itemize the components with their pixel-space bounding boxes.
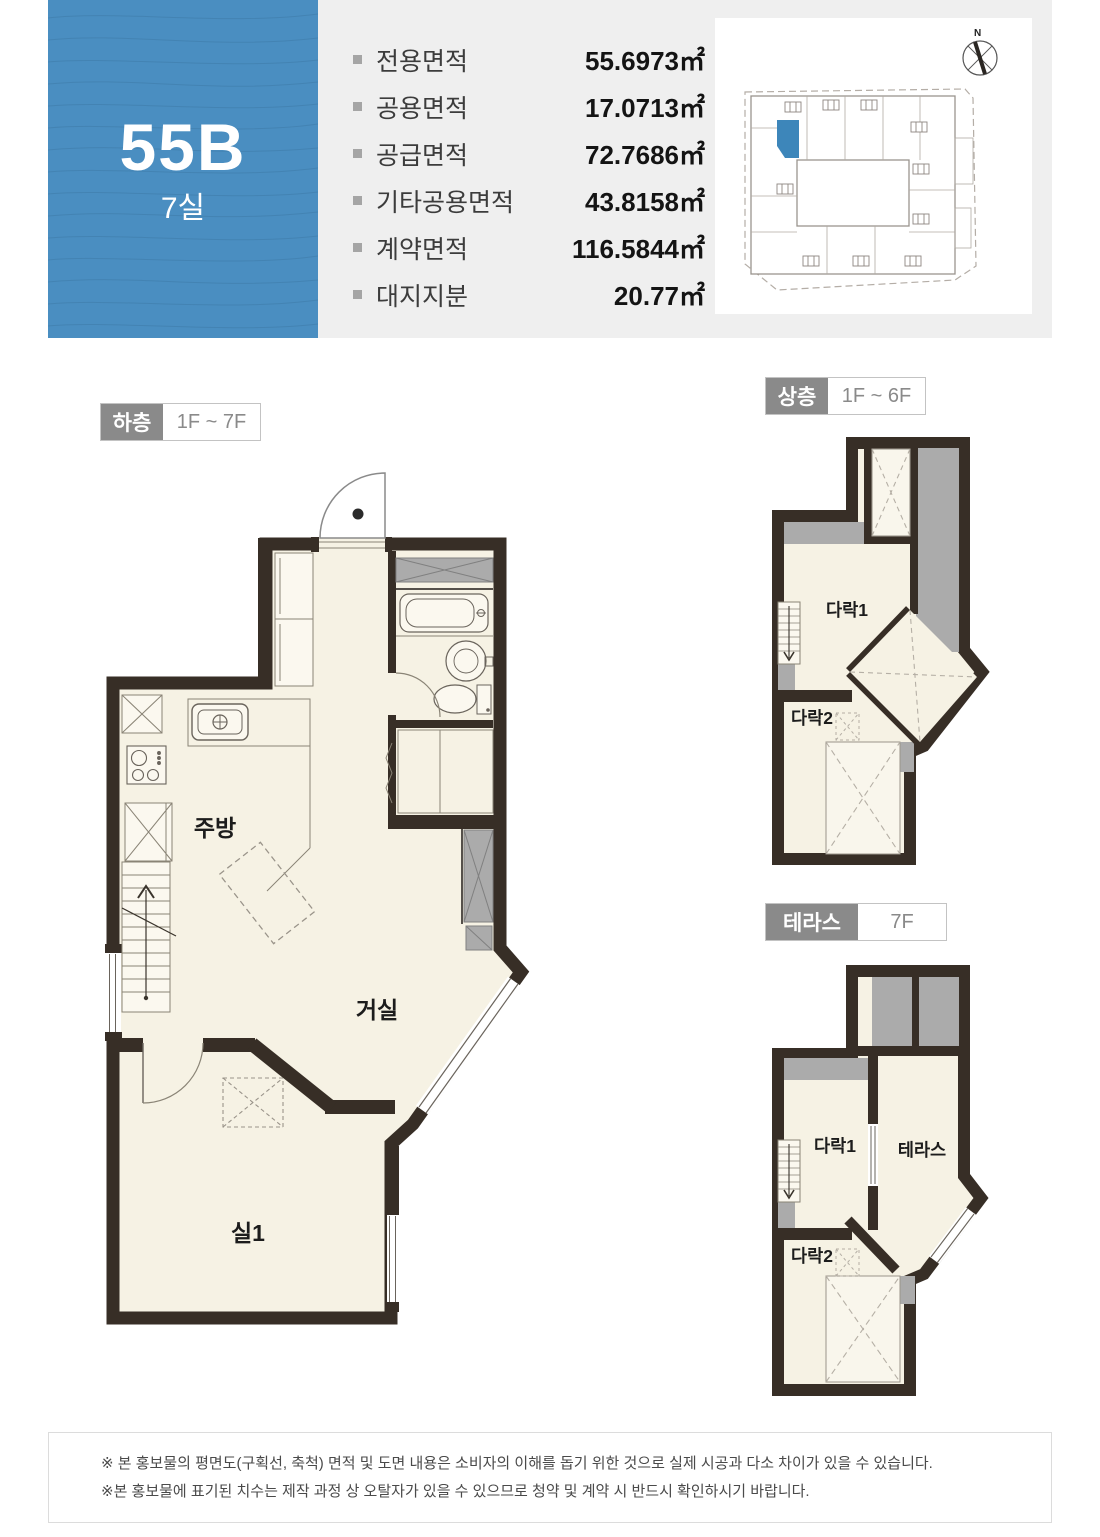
- upper-floor-plan: 다락1 다락2: [750, 430, 1000, 875]
- site-key-plan: N: [715, 18, 1032, 314]
- window-attic-terrace: [868, 1124, 878, 1186]
- kitchen-label: 주방: [194, 815, 236, 841]
- terrace-label: 테라스: [898, 1140, 946, 1160]
- spec-label: 대지지분: [376, 277, 534, 313]
- spec-value: 17.0713㎡: [534, 88, 705, 125]
- window-left: [105, 944, 122, 1041]
- staircase: [122, 862, 176, 1012]
- spec-label: 전용면적: [376, 42, 534, 78]
- staircase: [778, 1140, 800, 1202]
- spec-row: 계약면적 116.5844㎡: [353, 224, 705, 271]
- floor-tag-name: 상층: [766, 378, 828, 414]
- disclaimer-box: ※ 본 홍보물의 평면도(구획선, 축척) 면적 및 도면 내용은 소비자의 이…: [48, 1432, 1052, 1523]
- bullet-icon: [353, 149, 362, 158]
- spec-row: 공용면적 17.0713㎡: [353, 83, 705, 130]
- lower-floor-plan: 주방 거실 실1: [100, 458, 540, 1368]
- cabinet-x-upper: [122, 695, 162, 733]
- compass-icon: N: [963, 28, 997, 75]
- room1-label: 실1: [231, 1220, 265, 1246]
- living-label: 거실: [356, 997, 398, 1023]
- bullet-icon: [353, 243, 362, 252]
- bullet-icon: [353, 102, 362, 111]
- spec-value: 20.77㎡: [534, 276, 705, 313]
- floor-tag-name: 하층: [101, 404, 163, 440]
- floor-tag-range: 7F: [858, 904, 946, 940]
- cabinet-x-lower: [125, 803, 172, 861]
- spec-label: 기타공용면적: [376, 183, 534, 219]
- disclaimer-line-2: ※본 홍보물에 표기된 치수는 제작 과정 상 오탈자가 있을 수 있으므로 청…: [101, 1478, 1011, 1506]
- void-x-rect: [826, 1276, 900, 1382]
- wardrobe: [386, 730, 493, 813]
- attic1-label: 다락1: [826, 600, 868, 620]
- spec-value: 72.7686㎡: [534, 135, 705, 172]
- attic2-label: 다락2: [791, 708, 833, 728]
- staircase: [778, 602, 800, 664]
- cooktop: [127, 746, 166, 784]
- unit-code: 55B: [119, 114, 246, 180]
- terrace-floor-plan: 다락1 테라스 다락2: [750, 958, 1000, 1413]
- floor-tag-range: 1F ~ 6F: [828, 378, 925, 414]
- bullet-icon: [353, 196, 362, 205]
- entry-closet: [275, 553, 313, 686]
- kitchen-sink: [192, 704, 248, 740]
- spec-value: 116.5844㎡: [534, 229, 705, 266]
- bullet-icon: [353, 290, 362, 299]
- bathtub: [400, 594, 488, 632]
- floor-tag-name: 테라스: [766, 904, 858, 940]
- closet-x-column: [872, 449, 910, 536]
- door-knob-dot: [353, 509, 364, 520]
- unit-type-box: 55B 7실: [48, 0, 318, 338]
- north-label: N: [974, 28, 981, 39]
- attic2-label: 다락2: [791, 1246, 833, 1266]
- toilet: [434, 685, 491, 714]
- bullet-icon: [353, 55, 362, 64]
- lower-floor-tag: 하층 1F ~ 7F: [100, 403, 261, 441]
- spec-row: 기타공용면적 43.8158㎡: [353, 177, 705, 224]
- spec-label: 공용면적: [376, 89, 534, 125]
- area-spec-list: 전용면적 55.6973㎡ 공용면적 17.0713㎡ 공급면적 72.7686…: [353, 36, 705, 318]
- disclaimer-line-1: ※ 본 홍보물의 평면도(구획선, 축척) 면적 및 도면 내용은 소비자의 이…: [101, 1450, 1011, 1478]
- upper-floor-tag: 상층 1F ~ 6F: [765, 377, 926, 415]
- attic1-label: 다락1: [814, 1136, 856, 1156]
- unit-room-count: 7실: [161, 194, 205, 224]
- window-room1: [385, 1205, 399, 1312]
- spec-value: 43.8158㎡: [534, 182, 705, 219]
- terrace-floor-tag: 테라스 7F: [765, 903, 947, 941]
- void-x-rect: [826, 742, 900, 854]
- spec-row: 전용면적 55.6973㎡: [353, 36, 705, 83]
- brochure-page: 55B 7실 전용면적 55.6973㎡ 공용면적 17.0713㎡ 공급면적 …: [0, 0, 1100, 1537]
- entry-door-swing: [320, 473, 385, 538]
- spec-row: 공급면적 72.7686㎡: [353, 130, 705, 177]
- spec-label: 계약면적: [376, 230, 534, 266]
- spec-row: 대지지분 20.77㎡: [353, 271, 705, 318]
- spec-value: 55.6973㎡: [534, 41, 705, 78]
- spec-label: 공급면적: [376, 136, 534, 172]
- floor-tag-range: 1F ~ 7F: [163, 404, 260, 440]
